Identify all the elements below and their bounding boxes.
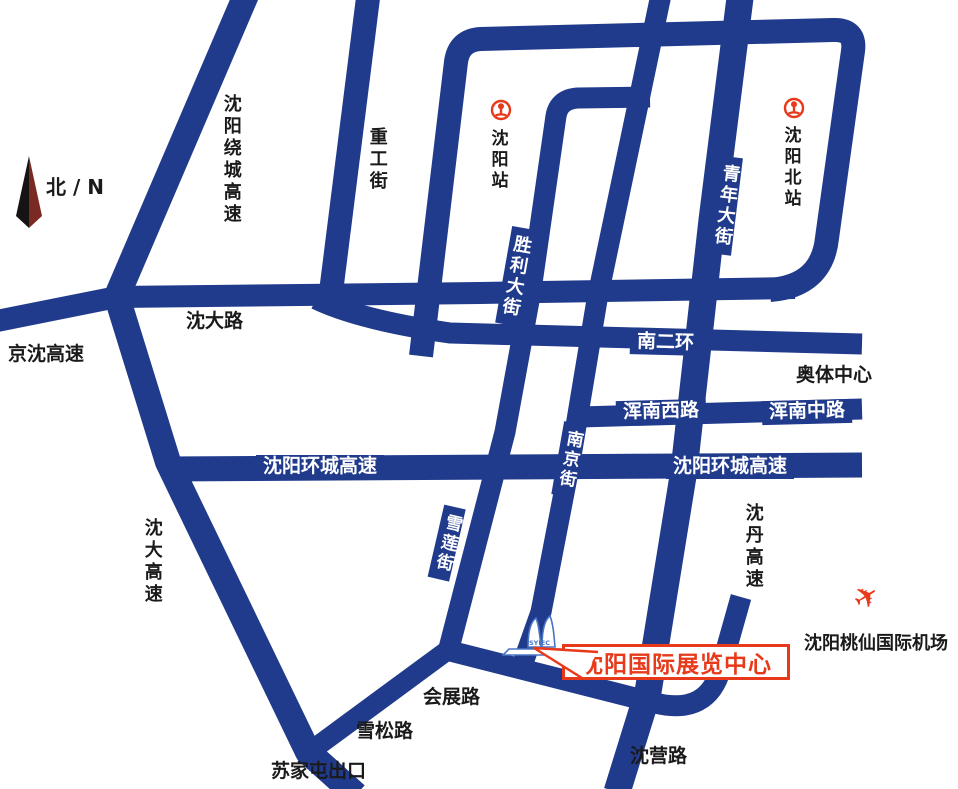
label-sujiatun-exit: 苏家屯出口 [271, 761, 366, 783]
road-label-hunnan-west: 浑南西路 [616, 399, 707, 425]
road-label-huancheng-east: 沈阳环城高速 [666, 455, 794, 479]
label-olympic-center: 奥体中心 [796, 365, 872, 387]
compass-north-icon [14, 154, 44, 232]
road-label-jingshen: 京沈高速 [8, 344, 84, 366]
road-label-shenying: 沈营路 [630, 746, 687, 768]
road-label-huancheng-west: 沈阳环城高速 [256, 455, 384, 479]
label-airport: 沈阳桃仙国际机场 [804, 634, 948, 655]
compass-label: 北 / N [46, 176, 104, 199]
road-label-xuesong: 雪松路 [356, 721, 413, 743]
road-label-shendan-expressway: 沈丹高速 [742, 503, 763, 591]
road-label-shenda-expressway: 沈大高速 [141, 518, 162, 606]
road-label-raocheng: 沈阳绕城高速 [220, 94, 241, 226]
callout-pointer [520, 640, 610, 685]
road-network [0, 0, 958, 789]
road-label-zhonggong: 重工街 [366, 127, 387, 193]
label-shenyang-station: 沈阳站 [487, 129, 507, 192]
road-label-shendalu: 沈大路 [186, 311, 243, 333]
road-label-huizhan: 会展路 [423, 687, 480, 709]
road-zhonggong-street [331, 0, 369, 292]
road-label-hunnan-middle: 浑南中路 [762, 399, 853, 425]
railway-station-icon [783, 96, 805, 120]
road-label-nanerhuan: 南二环 [630, 330, 702, 356]
label-shenyang-north-station: 沈阳北站 [780, 126, 800, 210]
shenyang-map: 北 / N SYIEC ✈ 京沈高速 沈大路 奥体中心 会展路 雪松路 苏家屯出… [0, 0, 958, 789]
railway-station-icon [490, 98, 512, 122]
